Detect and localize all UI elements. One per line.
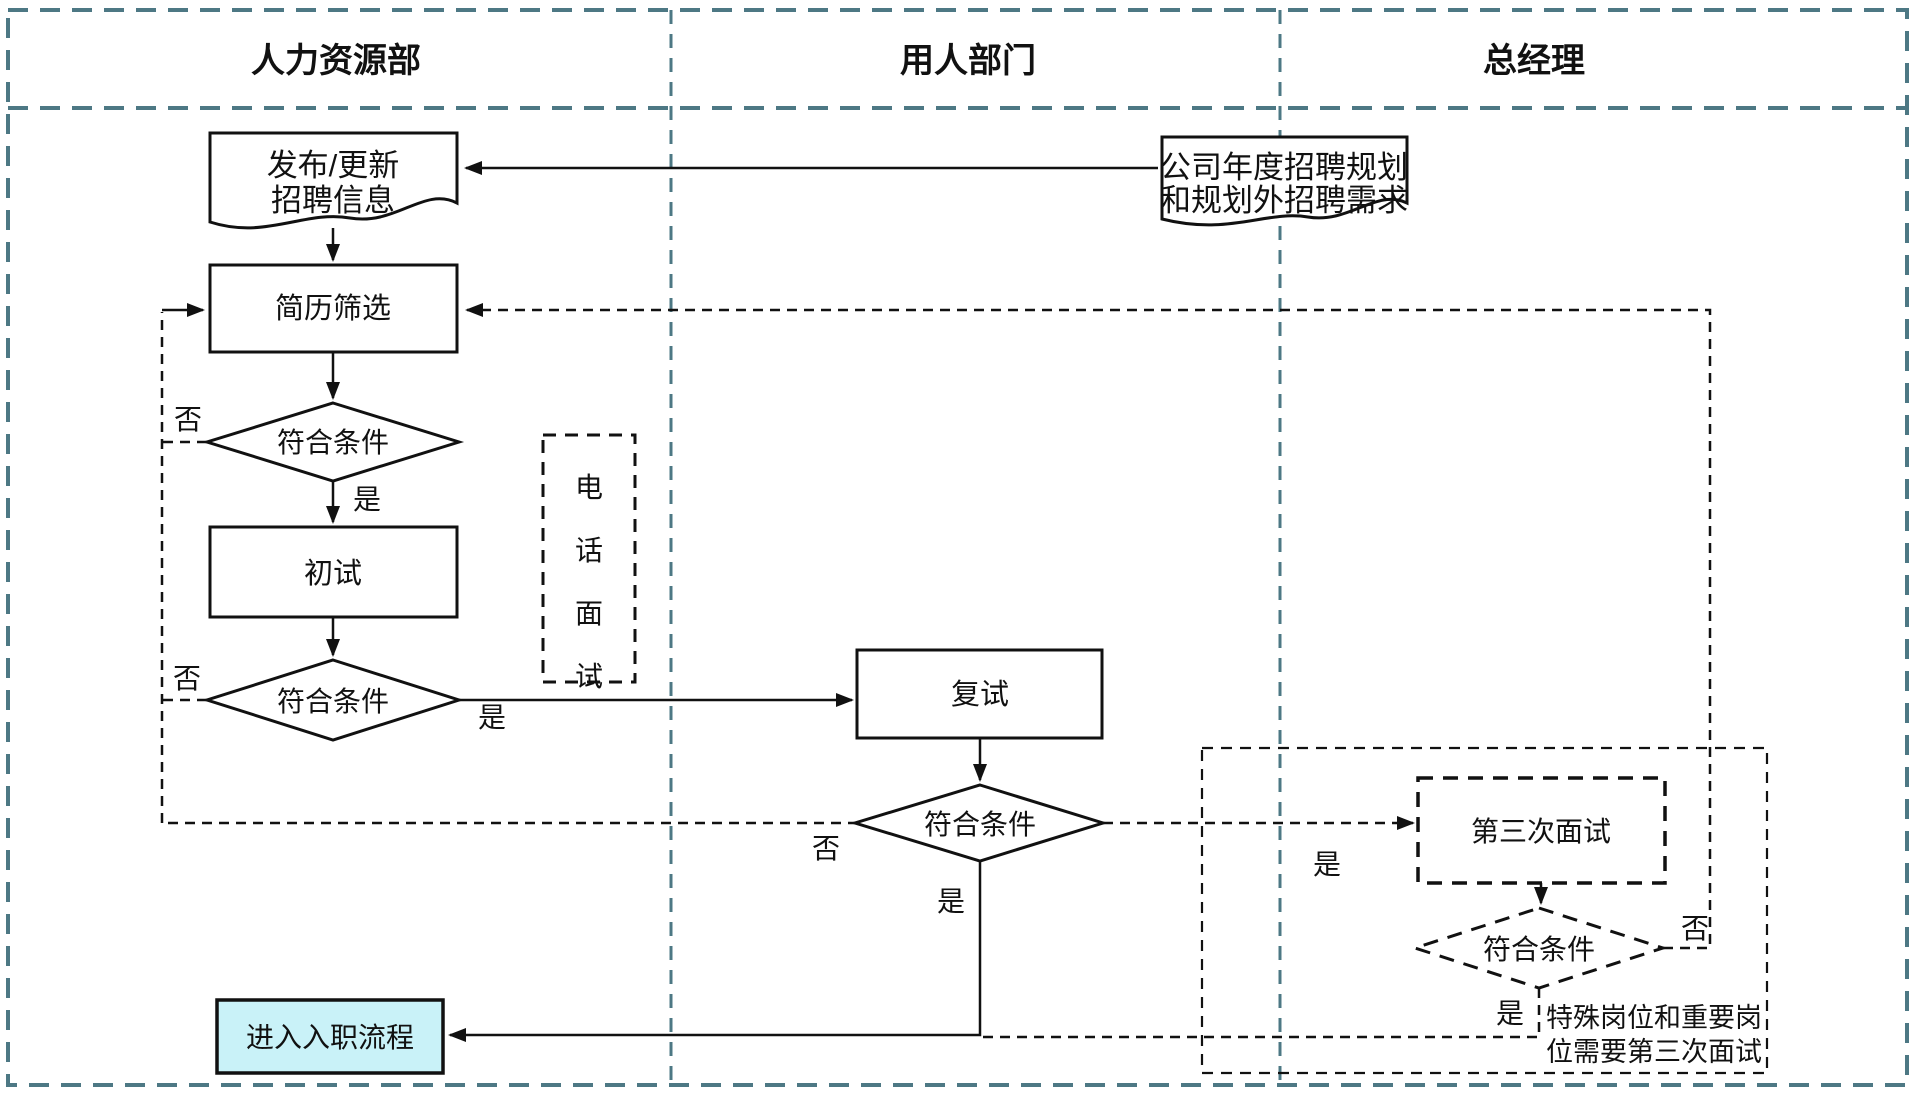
decision-screening-label: 符合条件 [277, 427, 389, 458]
label-yes-first: 是 [478, 702, 506, 733]
document-annual-plan-line2: 和规划外招聘需求 [1160, 183, 1408, 218]
flowchart-canvas: 人力资源部 用人部门 总经理 发布/更新 招聘信息 简历筛选 符合条件 初试 符… [0, 0, 1920, 1099]
label-no-first: 否 [173, 663, 201, 694]
label-yes-to-third: 是 [1313, 849, 1341, 880]
lane-title-hiring-dept: 用人部门 [900, 42, 1036, 80]
decision-second-interview-label: 符合条件 [924, 809, 1036, 840]
recruitment-flowchart: 人力资源部 用人部门 总经理 发布/更新 招聘信息 简历筛选 符合条件 初试 符… [0, 0, 1920, 1099]
label-yes-second: 是 [937, 886, 965, 917]
terminator-onboarding-label: 进入入职流程 [246, 1022, 414, 1053]
document-annual-plan-line1: 公司年度招聘规划 [1160, 150, 1408, 185]
document-publish-update-line2: 招聘信息 [271, 183, 395, 218]
annotation-special-positions-line2: 位需要第三次面试 [1546, 1037, 1762, 1067]
process-resume-screening-label: 简历筛选 [275, 292, 391, 325]
document-publish-update-line1: 发布/更新 [267, 148, 400, 183]
note-phone-interview-char4: 试 [575, 661, 603, 692]
decision-third-interview-label: 符合条件 [1483, 934, 1595, 965]
connector-decision3-to-onboarding [450, 861, 980, 1035]
connector-yes-third-decision-to-onboarding-line [982, 988, 1539, 1037]
lane-title-hr: 人力资源部 [251, 42, 421, 80]
process-third-interview-label: 第三次面试 [1471, 816, 1611, 847]
annotation-special-positions-line1: 特殊岗位和重要岗 [1546, 1003, 1762, 1033]
process-second-interview-label: 复试 [951, 678, 1009, 711]
process-first-interview-label: 初试 [304, 557, 362, 590]
label-no-screening: 否 [174, 404, 202, 435]
label-yes-screening: 是 [353, 484, 381, 515]
label-no-second: 否 [812, 833, 840, 864]
decision-first-interview-label: 符合条件 [277, 686, 389, 717]
label-no-third: 否 [1681, 913, 1709, 944]
label-yes-third: 是 [1496, 998, 1524, 1029]
note-phone-interview-char2: 话 [575, 535, 603, 566]
note-phone-interview-char3: 面 [575, 598, 603, 629]
note-phone-interview-char1: 电 [575, 472, 603, 503]
lane-title-general-manager: 总经理 [1483, 42, 1585, 80]
